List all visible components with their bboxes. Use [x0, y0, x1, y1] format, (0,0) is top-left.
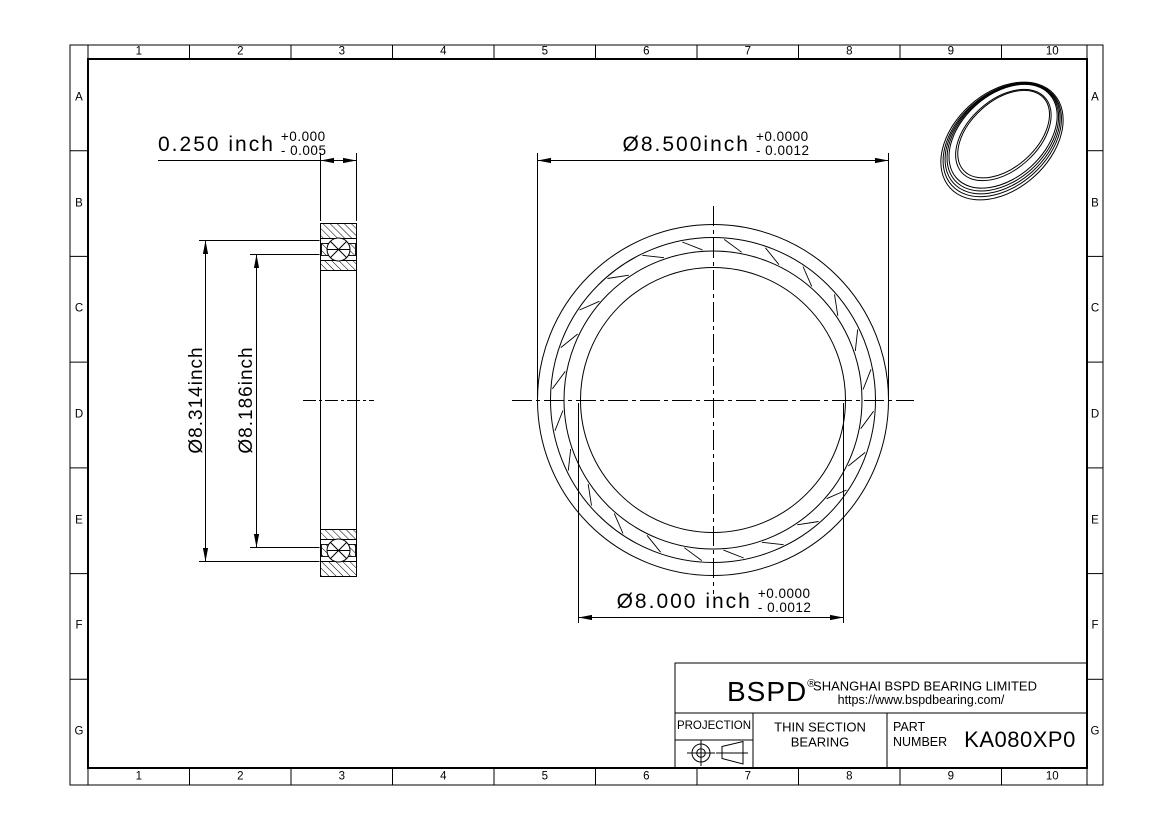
- grid-row-label-right-g: G: [1091, 726, 1100, 738]
- outer-raceway-dimension-text: Ø8.314inch: [186, 346, 208, 453]
- product-name-line2: BEARING: [791, 735, 850, 750]
- grid-row-label-left-f: F: [75, 621, 82, 633]
- grid-col-label-top-6: 6: [643, 46, 649, 58]
- grid-col-label-bottom-10: 10: [1046, 771, 1059, 783]
- part-number-label-line1: PART: [893, 720, 925, 734]
- front-view: [512, 206, 914, 594]
- grid-col-label-top-8: 8: [846, 46, 852, 58]
- company-logo: BSPD®: [727, 676, 815, 708]
- grid-row-label-left-b: B: [75, 198, 83, 210]
- part-number-value: KA080XP0: [964, 727, 1076, 753]
- outer-diameter-dimension-text: Ø8.500inch +0.0000 - 0.0012: [623, 129, 810, 159]
- company-website: https://www.bspdbearing.com/: [838, 693, 1005, 707]
- grid-col-label-top-5: 5: [542, 46, 548, 58]
- grid-row-label-right-b: B: [1091, 198, 1099, 210]
- grid-row-label-right-a: A: [1091, 92, 1099, 104]
- width-dimension-text: 0.250 inch +0.000 - 0.005: [158, 129, 326, 159]
- part-number-label-line2: NUMBER: [893, 735, 947, 749]
- grid-row-label-left-g: G: [75, 726, 84, 738]
- bore-diameter-dimension-text: Ø8.000 inch +0.0000 - 0.0012: [617, 586, 812, 616]
- bore-diameter-tolerance: +0.0000 - 0.0012: [758, 587, 812, 615]
- outer-diameter-tolerance: +0.0000 - 0.0012: [756, 130, 810, 158]
- grid-col-label-top-7: 7: [745, 46, 751, 58]
- grid-col-label-bottom-3: 3: [339, 771, 345, 783]
- grid-col-label-bottom-6: 6: [643, 771, 649, 783]
- ball-symbol-bottom: [327, 539, 350, 562]
- grid-col-label-bottom-1: 1: [136, 771, 142, 783]
- drawing-sheet: 1 2 3 4 5 6 7 8 9 10 1 2 3 4 5 6 7 8 9 1…: [0, 0, 1170, 827]
- grid-col-label-bottom-2: 2: [237, 771, 243, 783]
- isometric-view: [918, 58, 1086, 223]
- third-angle-projection-icon: [687, 740, 748, 766]
- grid-row-label-right-e: E: [1091, 515, 1099, 527]
- bore-diameter-value: Ø8.000 inch: [617, 591, 752, 612]
- dimension-outer-raceway: [199, 241, 320, 562]
- ball-symbol-top: [327, 238, 350, 261]
- width-dimension-tolerance: +0.000 - 0.005: [281, 130, 327, 158]
- grid-col-label-top-1: 1: [136, 46, 142, 58]
- grid-col-label-bottom-8: 8: [846, 771, 852, 783]
- company-name: SHANGHAI BSPD BEARING LIMITED: [813, 679, 1037, 694]
- logo-text: BSPD: [727, 676, 807, 707]
- projection-label: PROJECTION: [677, 720, 751, 732]
- grid-col-label-bottom-9: 9: [948, 771, 954, 783]
- grid-row-label-left-a: A: [75, 92, 83, 104]
- outer-diameter-value: Ø8.500inch: [623, 134, 750, 155]
- grid-row-label-right-d: D: [1091, 409, 1099, 421]
- grid-col-label-bottom-4: 4: [440, 771, 446, 783]
- width-dimension-value: 0.250 inch: [158, 134, 275, 155]
- grid-col-label-top-10: 10: [1046, 46, 1059, 58]
- grid-row-label-right-c: C: [1091, 304, 1099, 316]
- inner-raceway-dimension-text: Ø8.186inch: [236, 346, 258, 453]
- grid-col-label-bottom-7: 7: [745, 771, 751, 783]
- grid-col-label-top-4: 4: [440, 46, 446, 58]
- grid-col-label-top-3: 3: [339, 46, 345, 58]
- grid-row-label-left-e: E: [75, 515, 83, 527]
- dimension-width: [158, 153, 357, 221]
- section-view: [303, 224, 374, 577]
- grid-col-label-bottom-5: 5: [542, 771, 548, 783]
- grid-row-label-left-d: D: [75, 409, 83, 421]
- grid-col-label-top-9: 9: [948, 46, 954, 58]
- product-name-line1: THIN SECTION: [774, 720, 866, 735]
- grid-col-label-top-2: 2: [237, 46, 243, 58]
- grid-row-label-left-c: C: [75, 304, 83, 316]
- grid-row-label-right-f: F: [1091, 621, 1098, 633]
